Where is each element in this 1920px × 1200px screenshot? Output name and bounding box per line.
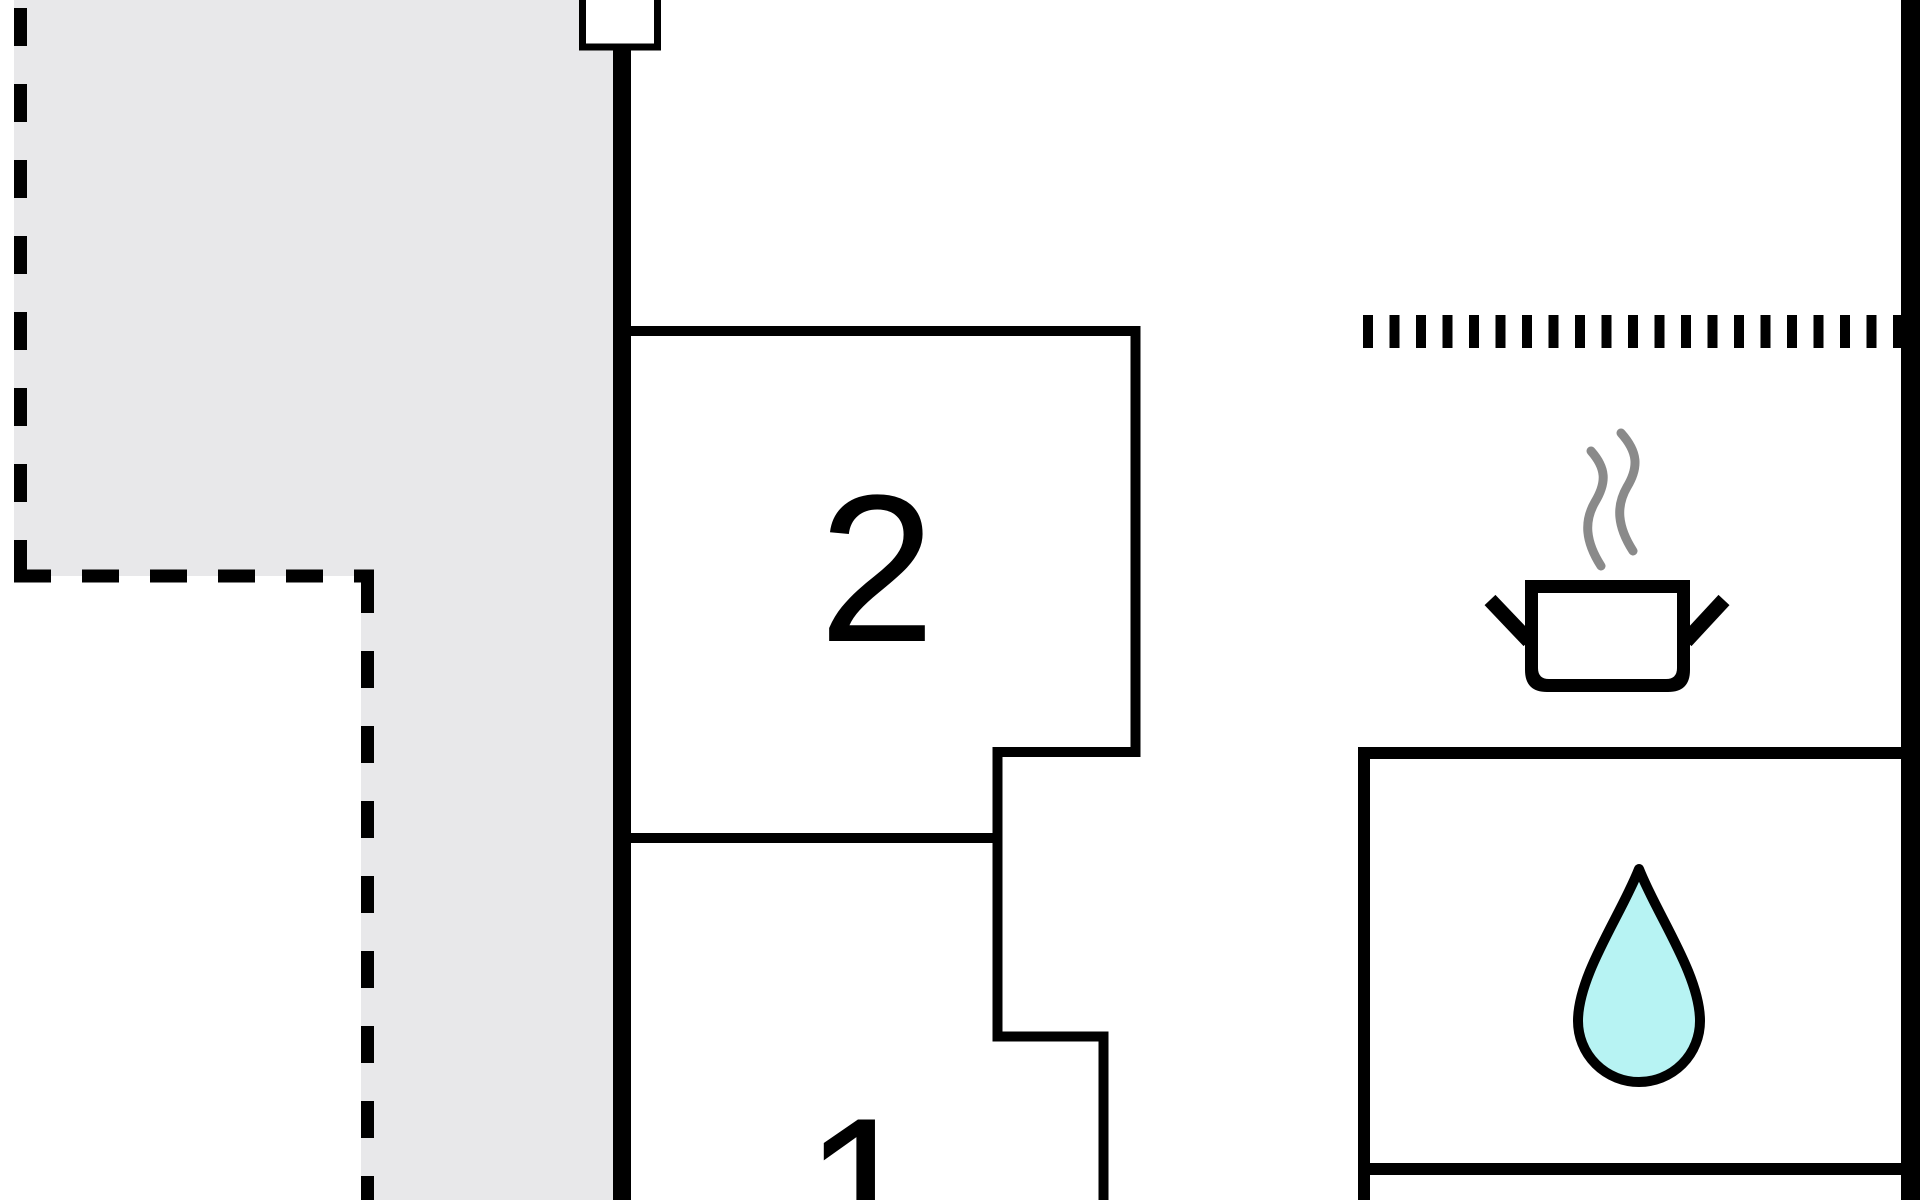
pot-body-inner <box>1538 593 1677 679</box>
door-marker <box>583 0 658 47</box>
pot-handle-right <box>1686 600 1724 641</box>
kitchen-area <box>1358 332 1920 1200</box>
room-2-label: 2 <box>819 451 936 686</box>
steam-wave-left-icon <box>1588 451 1604 566</box>
right-exterior-wall <box>1901 0 1920 1200</box>
room-1: 1 <box>804 1074 921 1200</box>
room-2: 2 <box>613 331 1136 1200</box>
pot-handle-left <box>1490 600 1529 641</box>
floorplan: 2 1 <box>0 0 1920 1200</box>
sink-icon <box>1578 869 1700 1082</box>
floorplan-canvas: 2 1 <box>0 0 1920 1200</box>
terrace-fill-upper <box>14 0 622 576</box>
main-wall <box>613 44 631 1200</box>
steam-wave-right-icon <box>1620 433 1635 551</box>
room-1-label: 1 <box>804 1074 921 1200</box>
terrace-fill-lower <box>361 576 622 1200</box>
stove-icon <box>1490 433 1724 692</box>
terrace-area <box>14 0 622 1200</box>
